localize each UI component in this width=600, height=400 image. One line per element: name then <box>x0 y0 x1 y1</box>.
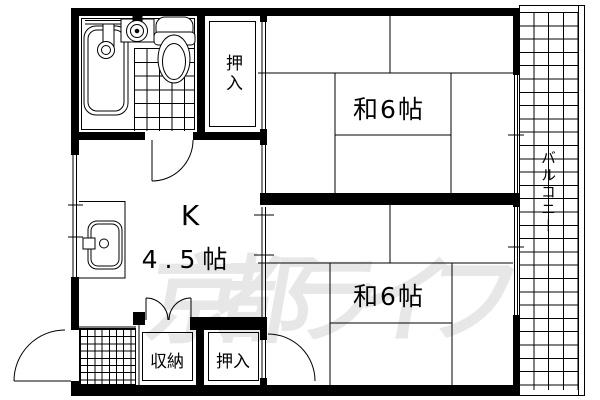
wall-left-lower <box>71 381 79 396</box>
kitchen-size-label: 4.5帖 <box>124 240 252 276</box>
closet-lower-label: 押入 <box>205 347 261 372</box>
kitchen-tap-icon <box>83 238 95 249</box>
wall-door-stub <box>133 312 145 325</box>
wall-between-rooms <box>260 193 519 205</box>
pipe-lines <box>85 21 122 25</box>
wall-left-mid <box>71 277 79 330</box>
wall-right-lower <box>513 315 519 396</box>
wall-divider-b <box>260 129 267 145</box>
balcony-label: バルコニー <box>538 150 559 235</box>
wall-divider-d <box>260 378 267 396</box>
kitchen-fixtures <box>83 221 122 269</box>
genkan-edge-line <box>79 325 139 385</box>
toilet-bowl-inner <box>163 44 186 80</box>
plan-linework <box>0 0 600 400</box>
room-upper-label: 和6帖 <box>330 90 448 126</box>
bath-faucet-inner <box>102 46 111 55</box>
storage-label: 収納 <box>139 347 195 372</box>
wall-bath-closet <box>197 16 205 132</box>
wall-storage-divider <box>196 330 204 385</box>
kitchen-tap-knob <box>100 239 109 248</box>
kitchen-double-door-arc <box>146 298 191 320</box>
floor-plan: 京都ライフ <box>0 0 600 400</box>
window-right-lower <box>508 207 524 315</box>
room-lower-door-arc <box>268 334 315 381</box>
bathroom-fixtures <box>84 15 195 115</box>
room-lower-label: 和6帖 <box>330 277 448 313</box>
entrance-door-arc <box>14 330 71 381</box>
wall-hall-top <box>190 317 267 330</box>
wall-right-upper <box>513 8 519 75</box>
washbasin-drain <box>135 29 139 33</box>
wall-bottom <box>71 385 519 396</box>
kitchen-type-label: K <box>158 199 222 232</box>
window-left <box>68 155 83 277</box>
window-right-upper <box>508 75 524 195</box>
closet-upper-label: 押入 <box>221 54 245 94</box>
wall-bath-bottom-right <box>193 132 267 140</box>
wall-divider-a <box>260 8 267 22</box>
divider-ticks <box>254 215 274 255</box>
wall-bath-bottom-left <box>71 132 145 140</box>
bathroom-door-arc <box>152 140 193 181</box>
